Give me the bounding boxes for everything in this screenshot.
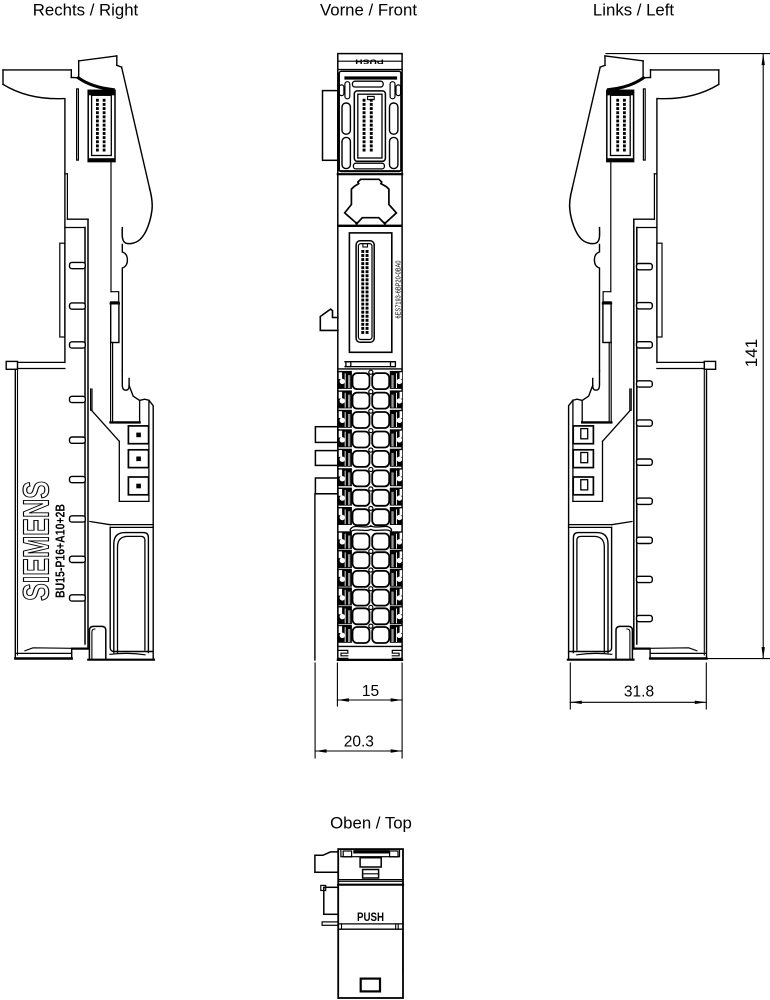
svg-text:6ES7193-6BP20-0BA0: 6ES7193-6BP20-0BA0 xyxy=(394,261,403,319)
svg-text:PUSH: PUSH xyxy=(357,912,384,924)
svg-text:SIEMENS: SIEMENS xyxy=(16,481,57,601)
svg-text:141: 141 xyxy=(742,339,761,367)
svg-text:Oben / Top: Oben / Top xyxy=(330,813,412,832)
svg-text:31.8: 31.8 xyxy=(624,683,654,700)
svg-text:20.3: 20.3 xyxy=(344,733,374,750)
svg-text:Vorne / Front: Vorne / Front xyxy=(320,1,417,20)
svg-text:Links / Left: Links / Left xyxy=(593,1,674,20)
svg-text:15: 15 xyxy=(362,683,379,700)
svg-text:BU15-P16+A10+2B: BU15-P16+A10+2B xyxy=(53,504,67,598)
svg-text:Rechts / Right: Rechts / Right xyxy=(33,1,139,20)
